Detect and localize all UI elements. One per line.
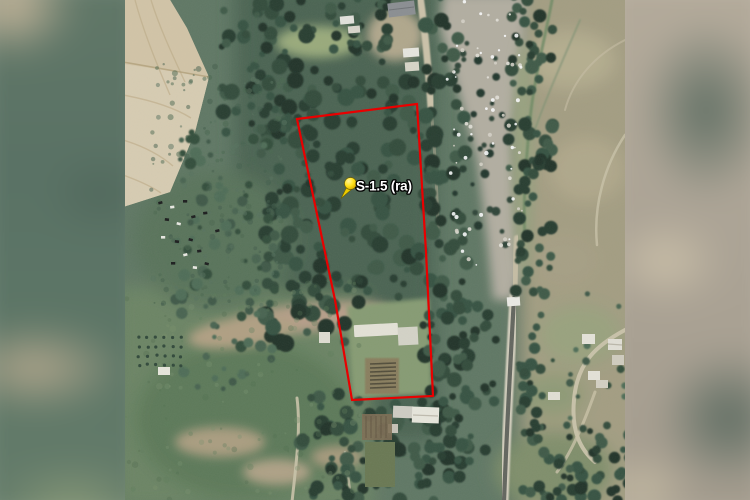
placemark-label[interactable]: S-1.5 (ra) — [356, 179, 412, 194]
satellite-map-canvas[interactable]: S-1.5 (ra) — [125, 0, 625, 500]
left-blur-texture — [0, 0, 125, 500]
right-blur-texture — [625, 0, 750, 500]
screenshot-root: S-1.5 (ra) — [0, 0, 750, 500]
satellite-image: S-1.5 (ra) — [125, 0, 625, 500]
right-blur-panel — [625, 0, 750, 500]
left-blur-panel — [0, 0, 125, 500]
grain-overlay — [125, 0, 625, 500]
pushpin-icon[interactable] — [345, 178, 357, 190]
